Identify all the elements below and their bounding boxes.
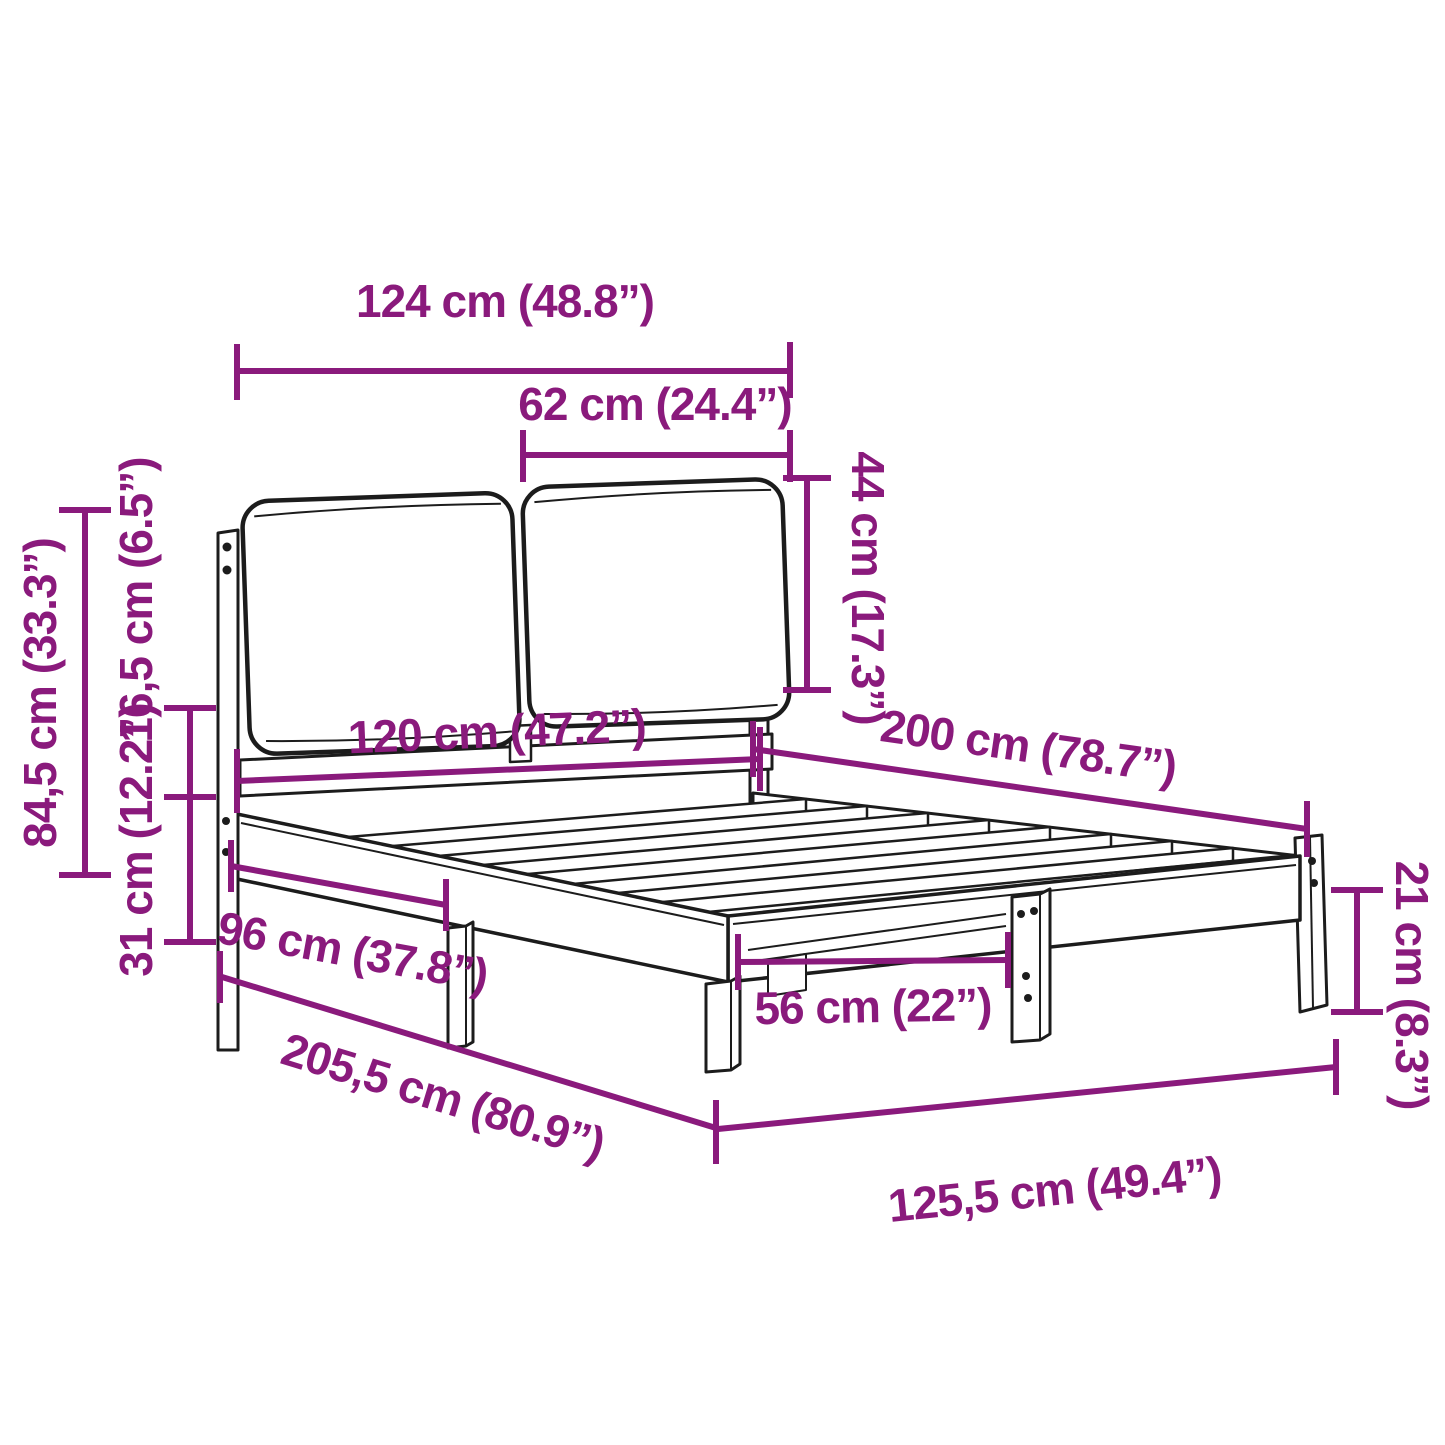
dimension-cushion-height: 44 cm (17.3”)	[783, 451, 894, 724]
dimension-diagram: 124 cm (48.8”) 62 cm (24.4”) 44 cm (17.3…	[0, 0, 1445, 1445]
foot-near-corner-leg	[706, 976, 740, 1072]
dimension-frame-top-height: 31 cm (12.2”)	[110, 703, 216, 976]
dimension-label-leg-height: 21 cm (8.3”)	[1386, 861, 1438, 1110]
dimension-cushion-width: 62 cm (24.4”)	[518, 378, 791, 482]
dimension-label-leg-clearance: 56 cm (22”)	[754, 978, 992, 1034]
dimension-label-cushion-width: 62 cm (24.4”)	[518, 378, 791, 430]
bed-frame-dimension-drawing: 124 cm (48.8”) 62 cm (24.4”) 44 cm (17.3…	[0, 0, 1445, 1445]
foot-middle-leg	[1012, 889, 1050, 1042]
dimension-label-frame-top-height: 31 cm (12.2”)	[110, 703, 162, 976]
dimension-label-headboard-overhang: 16,5 cm (6.5”)	[110, 457, 162, 742]
dimension-label-bed-length: 200 cm (78.7”)	[877, 699, 1179, 793]
dimension-headboard-height: 84,5 cm (33.3”)	[14, 510, 111, 875]
dimension-label-total-width: 125,5 cm (49.4”)	[886, 1146, 1224, 1232]
dimension-total-width: 125,5 cm (49.4”)	[718, 1039, 1336, 1232]
dimension-label-headboard-height: 84,5 cm (33.3”)	[14, 538, 66, 848]
dimension-label-headboard-total-width: 124 cm (48.8”)	[356, 275, 654, 327]
dimension-label-cushion-height: 44 cm (17.3”)	[842, 451, 894, 724]
headboard-cushion-right	[522, 479, 790, 728]
dimension-leg-height: 21 cm (8.3”)	[1331, 861, 1438, 1110]
